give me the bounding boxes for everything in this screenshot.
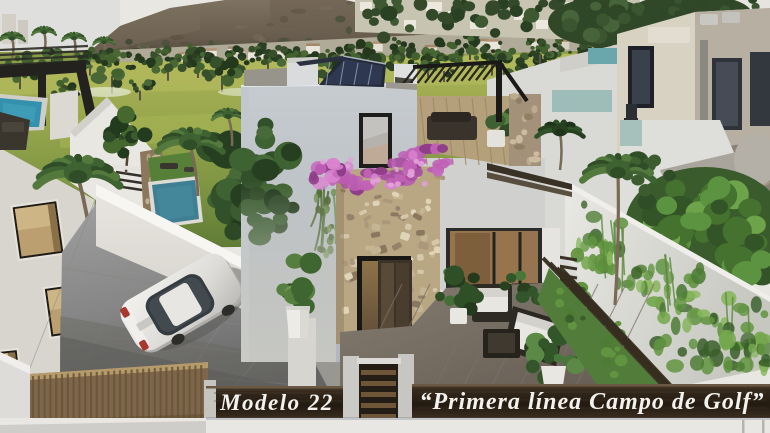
svg-text:“Primera línea Campo de Golf”: “Primera línea Campo de Golf”	[420, 389, 765, 415]
svg-text:Modelo 22: Modelo 22	[219, 390, 334, 415]
